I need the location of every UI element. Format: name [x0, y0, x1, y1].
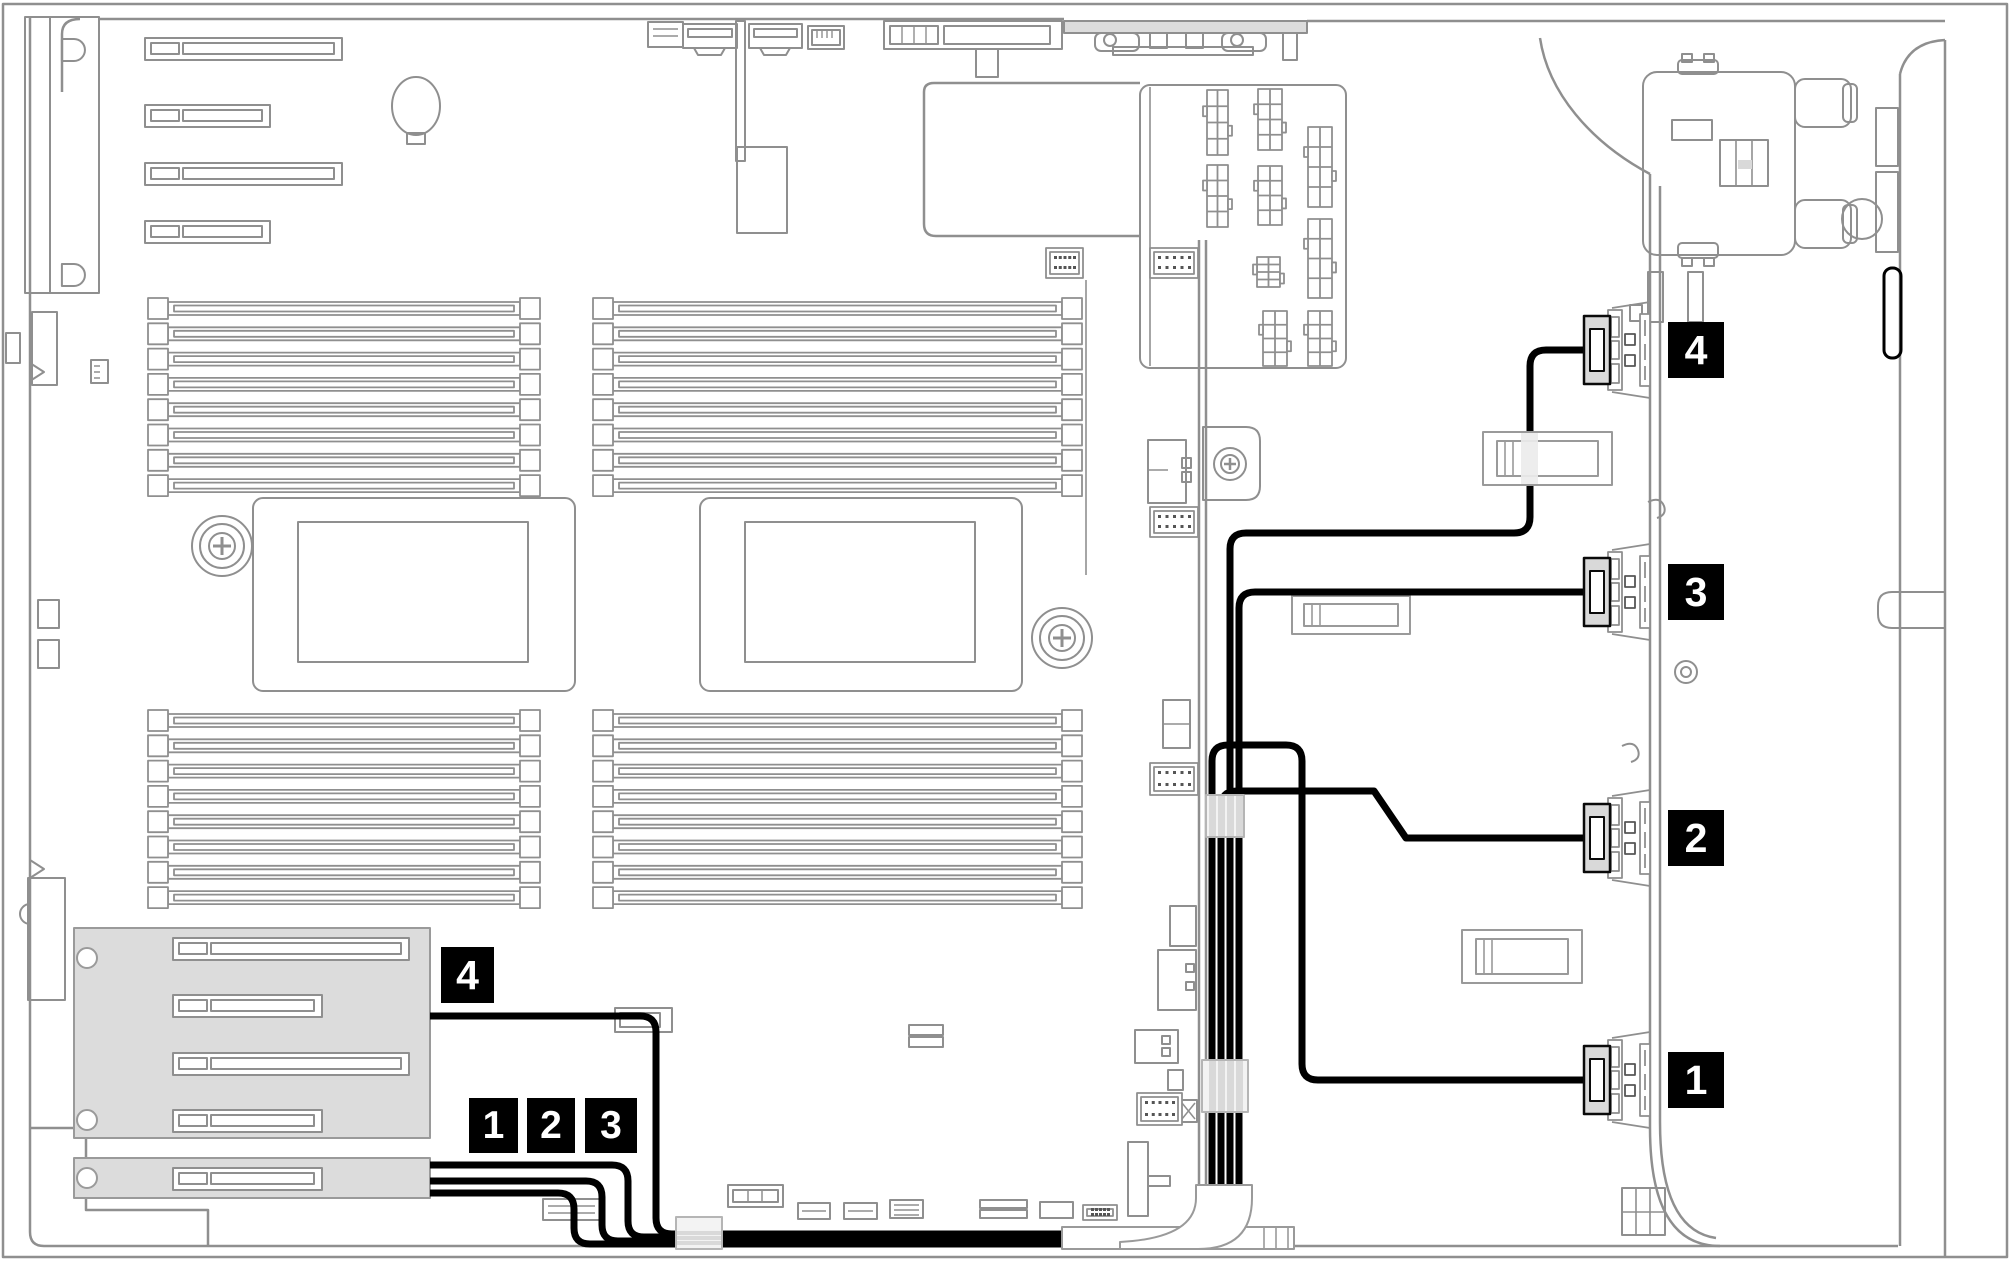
dimm-slot: [148, 399, 540, 420]
backplane-port: [1584, 544, 1650, 640]
dimm-slot: [593, 425, 1082, 446]
pin-header: [1046, 248, 1083, 278]
rear-io-ports: [648, 21, 1062, 233]
power-connector: [1253, 257, 1284, 287]
pin-header: [1150, 763, 1198, 795]
cpu-socket-1: [192, 498, 575, 691]
dimm-slot: [148, 837, 540, 858]
screw-icon: [1053, 629, 1071, 647]
dimm-slot: [148, 323, 540, 344]
callout-left-3: 3: [585, 1098, 637, 1153]
serial-port: [648, 22, 683, 47]
dimm-slot: [593, 786, 1082, 807]
power-connector: [1203, 90, 1232, 155]
cpu-sockets: [192, 498, 1092, 691]
pcie-slot: [145, 38, 342, 60]
dimm-slot: [148, 786, 540, 807]
callout-left-4: 4: [441, 947, 494, 1003]
backplane-port: [1584, 1032, 1650, 1128]
cable-clip-lower: [1202, 1060, 1248, 1112]
dimm-slot: [593, 735, 1082, 756]
dimm-slot: [148, 450, 540, 471]
vent-slot: [1688, 272, 1703, 322]
routing-slot-2: [1483, 432, 1612, 485]
pcie-slot: [145, 105, 270, 127]
pcie-slot: [173, 938, 409, 960]
cable-routing-diagram: 4 3 2 1 4 1 2 3: [0, 0, 2010, 1262]
dimm-slot: [148, 862, 540, 883]
network-port: [808, 26, 844, 49]
wall-latch: [1878, 592, 1945, 628]
cmos-battery: [392, 77, 440, 144]
dimm-slot: [148, 475, 540, 496]
pcie-slot: [145, 163, 342, 185]
dimm-slot: [593, 399, 1082, 420]
pcie-slot: [173, 1110, 322, 1132]
dimm-slot: [148, 735, 540, 756]
bottom-edge-connectors: [543, 1008, 1170, 1220]
dimm-slot: [148, 811, 540, 832]
callout-right-2: 2: [1668, 810, 1724, 866]
dimm-slot: [593, 323, 1082, 344]
cpu-socket-2: [700, 498, 1092, 691]
dimm-slot: [148, 887, 540, 908]
pin-header: [1083, 1205, 1117, 1220]
dimm-slot: [148, 349, 540, 370]
dimm-slot: [148, 761, 540, 782]
power-connector: [1254, 166, 1286, 225]
screw-icon: [1224, 458, 1236, 470]
screw-icon: [213, 537, 231, 555]
drive-backplane-ports: [1584, 302, 1650, 1128]
dimm-slot: [593, 710, 1082, 731]
dimm-slot: [593, 298, 1082, 319]
usb-port-2: [749, 24, 802, 55]
dimm-slot: [148, 374, 540, 395]
callout-left-1: 1: [469, 1098, 518, 1153]
dimm-slot: [593, 887, 1082, 908]
psu-bay: [1064, 21, 1307, 60]
dimm-slot: [593, 837, 1082, 858]
cable-clip-bundle: [676, 1217, 722, 1249]
dimm-slot: [593, 450, 1082, 471]
pcie-slot: [145, 221, 270, 243]
callout-right-4: 4: [1668, 322, 1724, 378]
pcie-slot: [173, 995, 322, 1017]
callout-right-1: 1: [1668, 1052, 1724, 1108]
rear-fan-module: [1643, 54, 1898, 266]
left-wall-brackets: [6, 17, 108, 1000]
power-connector: [1203, 165, 1232, 227]
dimm-slot: [593, 761, 1082, 782]
dimm-slot: [148, 710, 540, 731]
dimm-slot: [148, 425, 540, 446]
cable-clip-upper: [1206, 795, 1244, 837]
pin-header: [1137, 1093, 1182, 1125]
routing-slot-4: [1462, 930, 1582, 983]
dimm-slot: [593, 475, 1082, 496]
power-connector: [1304, 219, 1336, 298]
dimm-slot: [593, 374, 1082, 395]
dimm-slot: [593, 349, 1082, 370]
pcie-slot: [173, 1053, 409, 1075]
pcie-slot: [173, 1168, 322, 1190]
dimm-slot: [593, 862, 1082, 883]
power-connector: [1304, 127, 1336, 207]
power-connector: [1304, 311, 1336, 366]
sata-connector: [615, 1008, 672, 1032]
usb-port-1: [683, 24, 737, 55]
vga-port: [884, 21, 1062, 77]
power-connectors: [1203, 89, 1336, 366]
wall-handle: [1884, 268, 1901, 358]
backplane-port: [1584, 790, 1650, 886]
callout-right-3: 3: [1668, 564, 1724, 620]
power-connector: [1254, 89, 1286, 150]
dimm-slot: [593, 811, 1082, 832]
dimm-slot: [148, 298, 540, 319]
backplane-port: [1584, 302, 1650, 398]
pin-header: [1150, 248, 1198, 278]
pin-header: [1150, 507, 1198, 537]
screw-hole: [1675, 661, 1697, 683]
cable-hook: [1622, 744, 1639, 762]
callout-left-2: 2: [527, 1098, 575, 1153]
power-connector: [1259, 311, 1291, 366]
routing-slot-3: [1292, 596, 1410, 634]
